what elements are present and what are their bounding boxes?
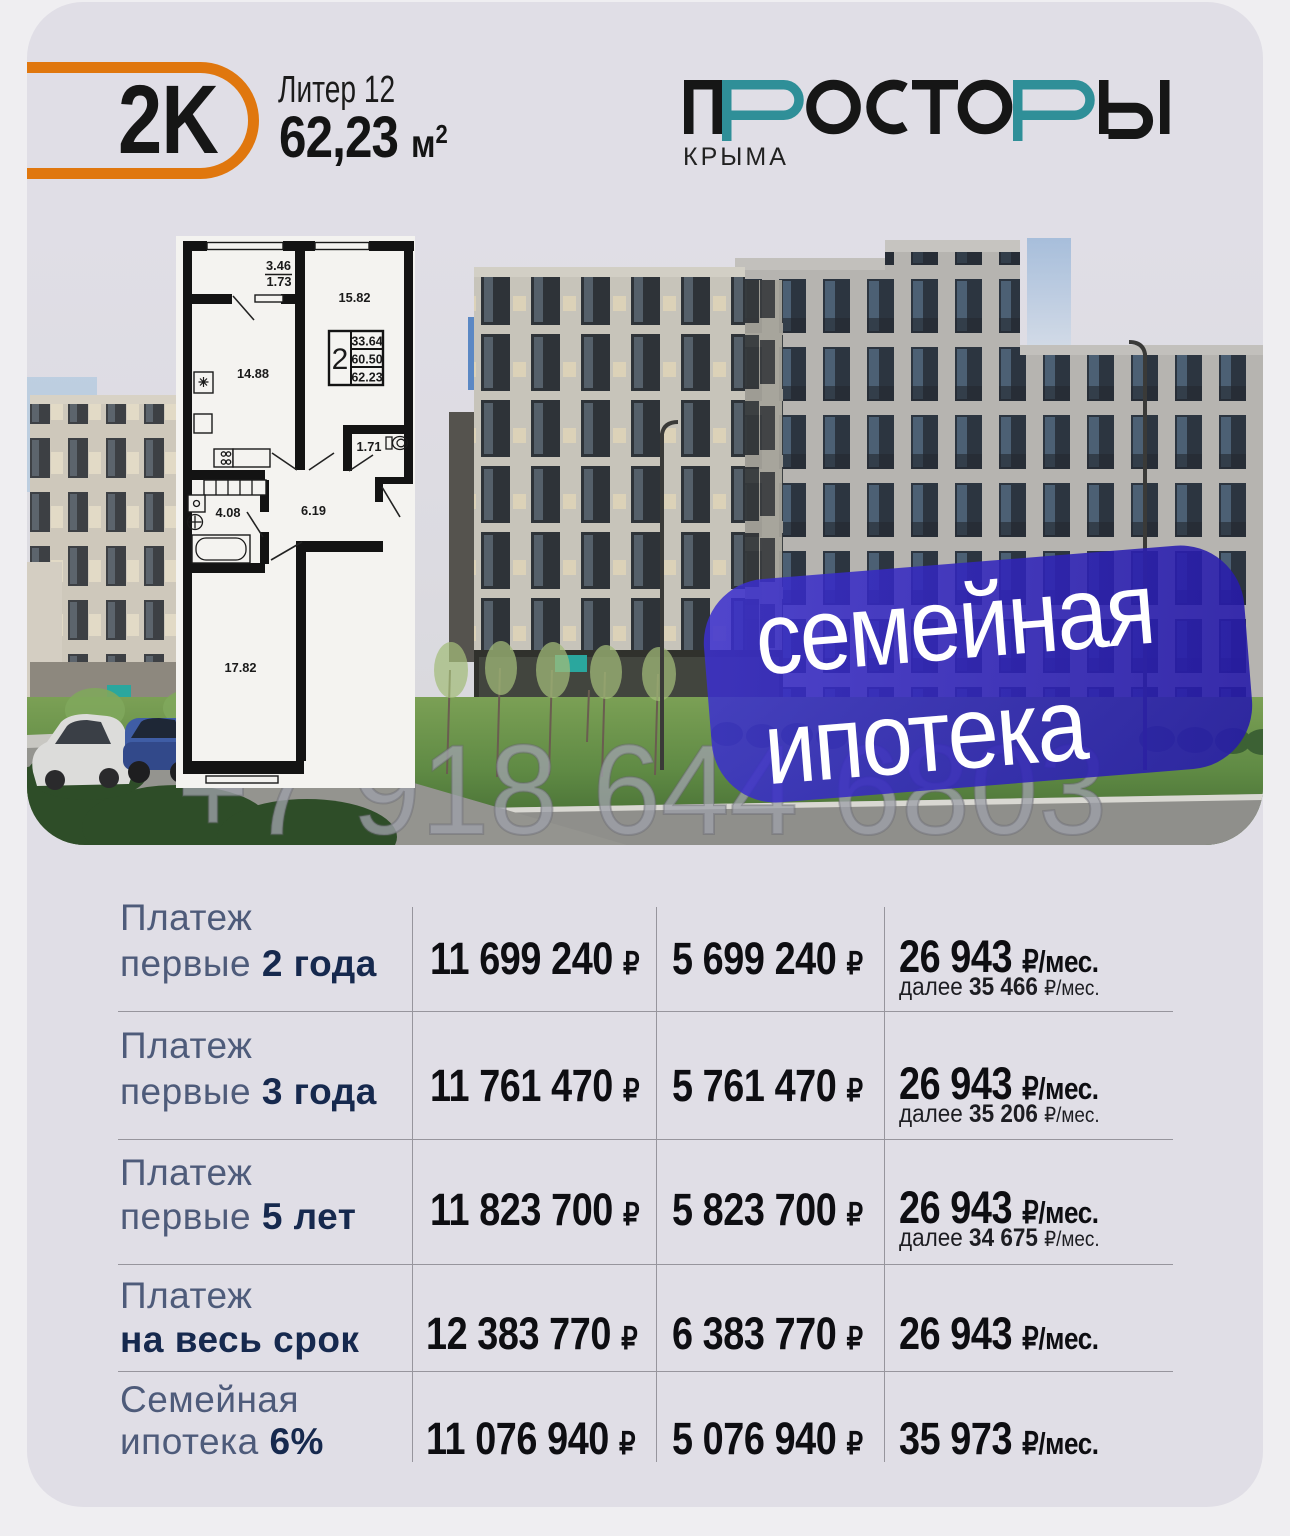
svg-text:1.71: 1.71: [357, 439, 382, 454]
svg-text:17.82: 17.82: [224, 660, 256, 675]
svg-text:33.64: 33.64: [351, 335, 382, 349]
svg-text:15.82: 15.82: [338, 290, 370, 305]
svg-text:6.19: 6.19: [301, 503, 326, 518]
svg-text:2: 2: [332, 343, 349, 376]
svg-text:60.50: 60.50: [351, 353, 382, 367]
svg-text:4.08: 4.08: [216, 505, 241, 520]
svg-text:62.23: 62.23: [351, 371, 382, 385]
svg-text:1.73: 1.73: [267, 274, 292, 289]
svg-text:14.88: 14.88: [237, 366, 269, 381]
svg-text:3.46: 3.46: [266, 258, 291, 273]
